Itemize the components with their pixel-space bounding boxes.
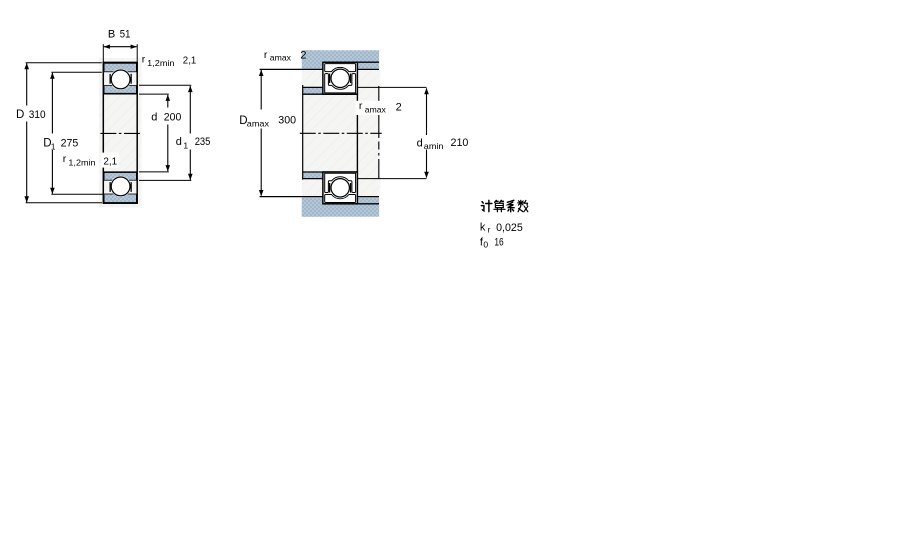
svg-text:k: k	[480, 222, 486, 234]
svg-text:amin: amin	[424, 141, 444, 151]
svg-text:0,025: 0,025	[496, 222, 523, 234]
svg-text:1: 1	[183, 141, 188, 151]
svg-text:275: 275	[61, 137, 79, 149]
svg-text:amax: amax	[365, 104, 387, 114]
svg-text:r: r	[63, 153, 67, 165]
svg-text:51: 51	[120, 29, 131, 41]
svg-text:1,2min: 1,2min	[147, 58, 175, 68]
svg-text:B: B	[108, 29, 115, 41]
svg-text:235: 235	[195, 136, 211, 148]
svg-text:amax: amax	[247, 119, 270, 129]
svg-text:d: d	[176, 136, 182, 148]
svg-text:r: r	[264, 49, 268, 61]
svg-text:2: 2	[396, 102, 402, 114]
svg-text:210: 210	[451, 137, 469, 149]
svg-text:16: 16	[494, 236, 503, 248]
svg-text:d: d	[417, 137, 423, 149]
svg-text:amax: amax	[270, 52, 292, 62]
svg-text:d: d	[151, 112, 157, 124]
svg-text:D: D	[16, 109, 24, 121]
svg-text:2,1: 2,1	[183, 54, 197, 66]
svg-text:300: 300	[278, 114, 296, 126]
svg-text:r: r	[488, 224, 491, 234]
svg-text:0: 0	[483, 239, 488, 249]
svg-text:200: 200	[164, 112, 182, 124]
svg-text:2: 2	[300, 49, 306, 61]
svg-text:r: r	[142, 54, 146, 66]
svg-text:1,2min: 1,2min	[68, 158, 95, 168]
svg-text:310: 310	[29, 109, 46, 121]
svg-text:2,1: 2,1	[103, 155, 117, 167]
svg-text:1: 1	[51, 141, 56, 151]
svg-text:r: r	[359, 100, 363, 112]
